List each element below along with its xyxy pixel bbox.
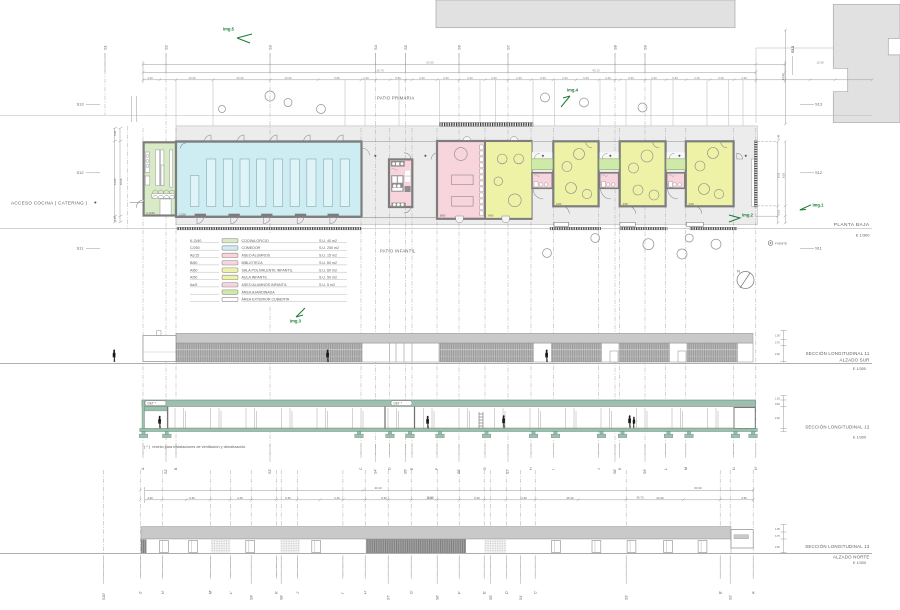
svg-text:6.16: 6.16 — [782, 172, 786, 178]
svg-text:BIBLIOTECA: BIBLIOTECA — [242, 261, 264, 265]
svg-text:2.40: 2.40 — [334, 496, 340, 500]
svg-text:S2: S2 — [163, 44, 168, 50]
svg-text:26.70: 26.70 — [637, 495, 644, 499]
svg-text:A/50: A/50 — [556, 202, 562, 206]
svg-text:S11: S11 — [77, 246, 85, 251]
svg-text:S1: S1 — [102, 44, 107, 50]
svg-text:43.10: 43.10 — [375, 486, 382, 490]
svg-text:L: L — [664, 468, 668, 470]
svg-text:1.20: 1.20 — [113, 216, 117, 222]
svg-text:2.40: 2.40 — [521, 496, 527, 500]
svg-text:63.30: 63.30 — [427, 61, 434, 65]
svg-text:S3': S3' — [624, 595, 628, 600]
svg-text:ALZADO SUR: ALZADO SUR — [839, 358, 869, 363]
svg-text:D: D — [388, 467, 392, 470]
svg-text:C': C' — [533, 590, 537, 594]
svg-text:6.30: 6.30 — [672, 76, 678, 80]
svg-text:6.30: 6.30 — [285, 496, 291, 500]
svg-text:6.30: 6.30 — [474, 496, 480, 500]
svg-text:6.30: 6.30 — [443, 76, 449, 80]
svg-text:6.30: 6.30 — [628, 76, 634, 80]
svg-text:A/50: A/50 — [689, 202, 695, 206]
svg-text:S13: S13 — [77, 102, 85, 107]
svg-text:S5': S5' — [489, 595, 493, 600]
svg-text:S6': S6' — [457, 469, 461, 474]
svg-text:ALZADO NORTE: ALZADO NORTE — [833, 555, 869, 560]
svg-text:E': E' — [482, 591, 486, 594]
svg-text:14.33: 14.33 — [113, 178, 117, 185]
svg-text:J': J' — [296, 591, 300, 594]
svg-text:I: I — [552, 469, 556, 470]
svg-text:8.33: 8.33 — [777, 172, 781, 178]
svg-text:ÁREA AJARDINADA: ÁREA AJARDINADA — [242, 290, 276, 294]
svg-text:M: M — [684, 467, 688, 470]
svg-text:H': H' — [363, 590, 367, 594]
svg-text:S.U. 250 m2: S.U. 250 m2 — [319, 246, 339, 250]
svg-text:2.40: 2.40 — [419, 76, 425, 80]
svg-text:S7: S7 — [505, 44, 510, 50]
svg-text:C/250: C/250 — [190, 246, 200, 250]
svg-text:S2': S2' — [164, 469, 168, 474]
svg-text:4.30: 4.30 — [741, 496, 747, 500]
svg-text:23.30: 23.30 — [657, 496, 664, 500]
svg-text:E 1/300: E 1/300 — [853, 367, 866, 371]
svg-text:2.60: 2.60 — [775, 546, 780, 549]
svg-text:3.16: 3.16 — [777, 209, 781, 215]
svg-text:13.30: 13.30 — [189, 76, 196, 80]
svg-text:S6: S6 — [456, 44, 461, 50]
svg-text:2.48: 2.48 — [777, 134, 781, 140]
svg-text:1.05: 1.05 — [775, 335, 780, 338]
svg-text:SECCIÓN LONGITUDINAL 13: SECCIÓN LONGITUDINAL 13 — [805, 544, 870, 549]
svg-text:2.60: 2.60 — [775, 353, 780, 356]
svg-text:4.30: 4.30 — [147, 496, 153, 500]
svg-text:A/60: A/60 — [190, 268, 197, 272]
svg-text:S12: S12 — [815, 170, 823, 175]
svg-text:10.90: 10.90 — [285, 76, 292, 80]
svg-text:ASEO ALUMNOS: ASEO ALUMNOS — [242, 254, 271, 258]
svg-text:A/60: A/60 — [488, 214, 494, 218]
svg-text:S9: S9 — [642, 44, 647, 50]
svg-text:S11: S11 — [815, 246, 823, 251]
svg-text:N: N — [737, 269, 740, 274]
svg-text:6.30: 6.30 — [718, 76, 724, 80]
svg-text:F': F' — [457, 591, 461, 594]
svg-text:As/15: As/15 — [190, 254, 199, 258]
svg-text:N': N' — [161, 590, 165, 594]
svg-text:2.40: 2.40 — [651, 76, 657, 80]
svg-text:63.30: 63.30 — [695, 486, 702, 490]
svg-text:COCINA OFICIO: COCINA OFICIO — [242, 239, 269, 243]
svg-text:COMEDOR: COMEDOR — [242, 246, 261, 250]
svg-text:SALA POLIVALENTE INFANTIL: SALA POLIVALENTE INFANTIL — [242, 268, 293, 272]
svg-text:S4: S4 — [373, 44, 378, 50]
svg-text:2.40: 2.40 — [605, 76, 611, 80]
svg-text:3.75: 3.75 — [775, 535, 780, 538]
svg-text:S.U. 15 m2: S.U. 15 m2 — [319, 254, 337, 258]
svg-text:3.75: 3.75 — [775, 342, 780, 345]
svg-text:2.40: 2.40 — [237, 496, 243, 500]
svg-text:5.80: 5.80 — [334, 76, 340, 80]
svg-text:2.40: 2.40 — [562, 76, 568, 80]
svg-text:D': D' — [505, 590, 509, 594]
svg-text:SECCIÓN LONGITUDINAL 11: SECCIÓN LONGITUDINAL 11 — [806, 351, 870, 356]
svg-text:0.60: 0.60 — [775, 403, 780, 406]
svg-text:A/50: A/50 — [623, 202, 629, 206]
svg-text:C/250: C/250 — [179, 213, 186, 217]
svg-text:S5: S5 — [403, 44, 408, 50]
svg-text:6.30: 6.30 — [381, 496, 387, 500]
svg-text:6.30: 6.30 — [491, 76, 497, 80]
svg-text:2.60: 2.60 — [775, 417, 780, 420]
svg-text:6.30: 6.30 — [540, 76, 546, 80]
svg-text:S4': S4' — [519, 595, 523, 600]
svg-text:img.4: img.4 — [567, 88, 579, 93]
svg-text:PATIO PRIMARIA: PATIO PRIMARIA — [377, 96, 415, 101]
svg-text:PATIO INFANTIL: PATIO INFANTIL — [380, 249, 416, 254]
svg-text:G: G — [483, 467, 487, 470]
svg-text:S6': S6' — [435, 595, 439, 600]
svg-text:43.13: 43.13 — [593, 69, 600, 73]
svg-text:S4': S4' — [374, 469, 378, 474]
svg-text:S7': S7' — [506, 469, 510, 474]
svg-text:S10': S10' — [102, 593, 106, 600]
svg-text:S3': S3' — [268, 469, 272, 474]
svg-text:N': N' — [754, 466, 758, 470]
svg-text:25.30: 25.30 — [567, 496, 574, 500]
svg-text:S12: S12 — [77, 170, 85, 175]
svg-text:C: C — [359, 467, 363, 470]
svg-text:As/5: As/5 — [190, 283, 197, 287]
svg-text:img.5: img.5 — [223, 27, 235, 32]
svg-text:E 1/300: E 1/300 — [853, 436, 866, 440]
svg-text:S.U. 5 m2: S.U. 5 m2 — [319, 283, 335, 287]
svg-text:5.28: 5.28 — [113, 130, 117, 136]
svg-text:AULA INFANTIL: AULA INFANTIL — [242, 276, 268, 280]
svg-text:DET *: DET * — [394, 402, 403, 406]
svg-text:ACCESO COCINA ( CATERING ): ACCESO COCINA ( CATERING ) — [11, 201, 88, 206]
svg-text:6.30: 6.30 — [189, 496, 195, 500]
svg-text:S8': S8' — [279, 595, 283, 600]
svg-text:A': A' — [751, 591, 755, 594]
svg-text:S9': S9' — [249, 595, 253, 600]
svg-text:B/60: B/60 — [190, 261, 197, 265]
svg-text:img.2: img.2 — [742, 213, 754, 218]
svg-text:26.70: 26.70 — [377, 69, 384, 73]
svg-text:2.40: 2.40 — [363, 76, 369, 80]
svg-text:M': M' — [209, 590, 213, 594]
svg-text:img.1: img.1 — [813, 203, 825, 208]
svg-text:S.U. 50 m2: S.U. 50 m2 — [319, 276, 337, 280]
svg-text:B': B' — [718, 591, 722, 594]
svg-text:( * ) recinto para instalacio: ( * ) recinto para instalaciones de vent… — [144, 445, 246, 449]
svg-text:H: H — [529, 467, 533, 470]
svg-text:K-O/40: K-O/40 — [147, 211, 156, 215]
svg-text:S9': S9' — [643, 469, 647, 474]
svg-text:4.30: 4.30 — [147, 76, 153, 80]
svg-text:S.U. 60 m2: S.U. 60 m2 — [319, 268, 337, 272]
svg-text:5.80: 5.80 — [395, 76, 401, 80]
svg-text:N: N — [732, 467, 736, 470]
svg-text:E 1/300: E 1/300 — [856, 233, 871, 238]
svg-text:S3: S3 — [267, 44, 272, 50]
svg-text:S2': S2' — [728, 595, 732, 600]
svg-text:S.U. 40 m2: S.U. 40 m2 — [319, 239, 337, 243]
svg-text:B/60: B/60 — [440, 214, 446, 218]
svg-text:S7': S7' — [386, 595, 390, 600]
svg-text:S8: S8 — [612, 44, 617, 50]
svg-text:S.U. 60 m2: S.U. 60 m2 — [319, 261, 337, 265]
svg-text:2.40: 2.40 — [516, 76, 522, 80]
svg-text:S8': S8' — [613, 469, 617, 474]
svg-text:10.38: 10.38 — [817, 61, 824, 65]
svg-text:img.3: img.3 — [290, 319, 302, 324]
svg-text:K': K' — [275, 591, 279, 594]
svg-text:2.40: 2.40 — [427, 496, 433, 500]
svg-text:2.40: 2.40 — [467, 76, 473, 80]
svg-text:1.26: 1.26 — [775, 398, 780, 401]
svg-text:4.30: 4.30 — [741, 76, 747, 80]
svg-text:ÁREA EXTERIOR CUBIERTA: ÁREA EXTERIOR CUBIERTA — [242, 298, 290, 302]
svg-text:23.30: 23.30 — [237, 76, 244, 80]
svg-text:J: J — [597, 468, 601, 470]
svg-text:G': G' — [409, 590, 413, 594]
svg-text:S10: S10 — [790, 45, 795, 53]
svg-text:S5': S5' — [404, 469, 408, 474]
svg-text:FUENTE: FUENTE — [775, 242, 787, 246]
svg-text:A/50: A/50 — [190, 276, 197, 280]
svg-text:L': L' — [229, 591, 233, 594]
svg-text:1.05: 1.05 — [775, 528, 780, 531]
svg-text:DET *: DET * — [148, 402, 157, 406]
svg-text:K-O/40: K-O/40 — [190, 239, 201, 243]
svg-text:SECCIÓN LONGITUDINAL 12: SECCIÓN LONGITUDINAL 12 — [805, 425, 870, 430]
svg-text:2.40: 2.40 — [694, 76, 700, 80]
svg-text:16.06: 16.06 — [119, 178, 123, 185]
svg-text:12.90: 12.90 — [781, 73, 785, 80]
svg-text:S13: S13 — [815, 102, 823, 107]
svg-text:Z': Z' — [139, 591, 143, 594]
svg-text:6.30: 6.30 — [583, 76, 589, 80]
svg-text:ASEO ALUMNOS INFANTIL: ASEO ALUMNOS INFANTIL — [242, 283, 287, 287]
svg-text:PLANTA BAJA: PLANTA BAJA — [834, 222, 870, 228]
svg-text:E 1/300: E 1/300 — [853, 561, 866, 565]
